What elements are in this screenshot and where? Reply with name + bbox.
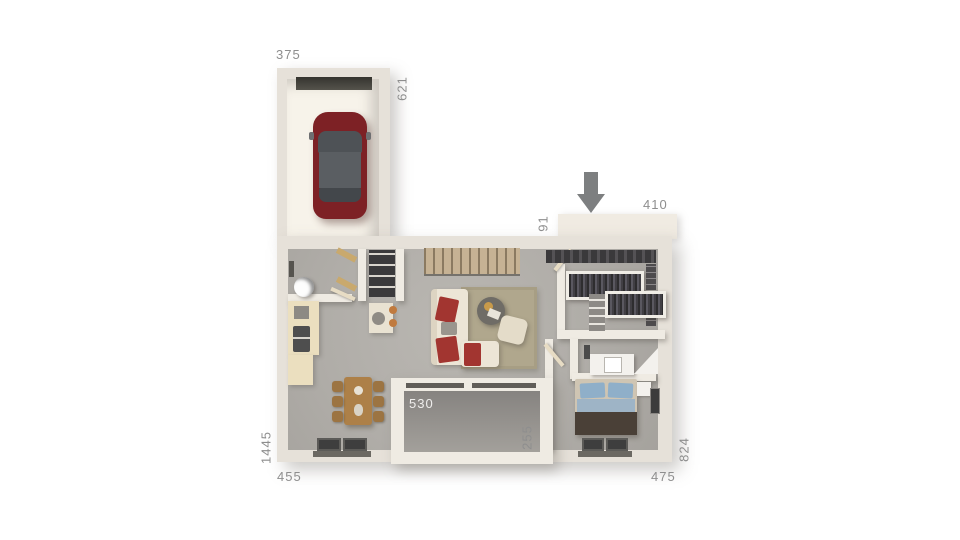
dimension-left-side: 1445	[259, 426, 274, 470]
dining-chair	[373, 381, 384, 392]
dimension-terrace-depth: 255	[520, 416, 535, 460]
car-rear-window	[319, 188, 361, 202]
red-pillow	[435, 336, 459, 364]
dining-chair	[373, 411, 384, 422]
car-mirror-right	[366, 132, 371, 140]
entrance-arrow-head-icon	[577, 194, 605, 213]
washing-machine	[294, 277, 314, 297]
gray-pillow	[441, 322, 457, 335]
table-setting	[354, 404, 363, 416]
entry-closet	[546, 250, 656, 263]
red-throw	[464, 343, 481, 366]
utility-cabinet	[289, 261, 294, 277]
bed-pillow	[580, 382, 606, 398]
floor-mat	[606, 438, 628, 451]
bathroom-cabinet	[584, 345, 590, 359]
kitchen-hob	[294, 306, 309, 319]
floor-mat	[343, 438, 367, 451]
car-roof	[319, 152, 361, 188]
wall-dressing-bottom	[557, 330, 665, 339]
dining-chair	[332, 381, 343, 392]
floor-mat	[317, 438, 341, 451]
window-bay	[578, 451, 632, 457]
window-bay	[313, 451, 371, 457]
dining-chair	[332, 396, 343, 407]
car	[313, 112, 367, 219]
car-mirror-left	[309, 132, 314, 140]
kitchen-sink	[293, 326, 310, 352]
dining-chair	[332, 411, 343, 422]
nightstand	[637, 382, 651, 396]
bed-duvet	[577, 399, 635, 412]
bathroom-sink	[604, 357, 622, 373]
terrace-bay-window	[472, 383, 536, 388]
dimension-entry-recess: 91	[536, 202, 551, 246]
terrace-bay-window	[406, 383, 464, 388]
dining-chair	[373, 396, 384, 407]
pantry-shelves	[369, 250, 395, 297]
dimension-bottom-right: 475	[651, 469, 676, 484]
dimension-terrace-width: 530	[409, 396, 434, 411]
entrance-arrow-icon	[584, 172, 598, 195]
wall-shelf	[646, 264, 656, 290]
wall-art	[650, 388, 660, 414]
dimension-right-side: 824	[677, 428, 692, 472]
table-setting	[354, 386, 363, 395]
floor-plan: 375 621 91 410 530 255 1445 455 475 824	[0, 0, 960, 540]
bed-blanket	[575, 412, 637, 435]
garage-door	[296, 77, 372, 90]
bed-pillow	[608, 382, 634, 398]
dimension-bottom-left: 455	[277, 469, 302, 484]
car-windshield	[318, 131, 362, 153]
wall-pantry-right	[396, 249, 404, 301]
dimension-garage-depth: 621	[395, 67, 410, 111]
dining-table	[344, 377, 372, 425]
kitchen-counter	[288, 355, 313, 385]
dressing-shelf	[589, 294, 605, 331]
floor-mat	[582, 438, 604, 451]
wall-utility-right	[358, 249, 366, 301]
desk-chair	[372, 312, 385, 325]
dimension-garage-width: 375	[276, 47, 301, 62]
stool	[389, 306, 397, 314]
wardrobe-rack	[605, 291, 666, 318]
staircase	[424, 248, 520, 276]
wall-dressing-left	[557, 264, 565, 332]
stool	[389, 319, 397, 327]
dimension-entry-width: 410	[643, 197, 668, 212]
